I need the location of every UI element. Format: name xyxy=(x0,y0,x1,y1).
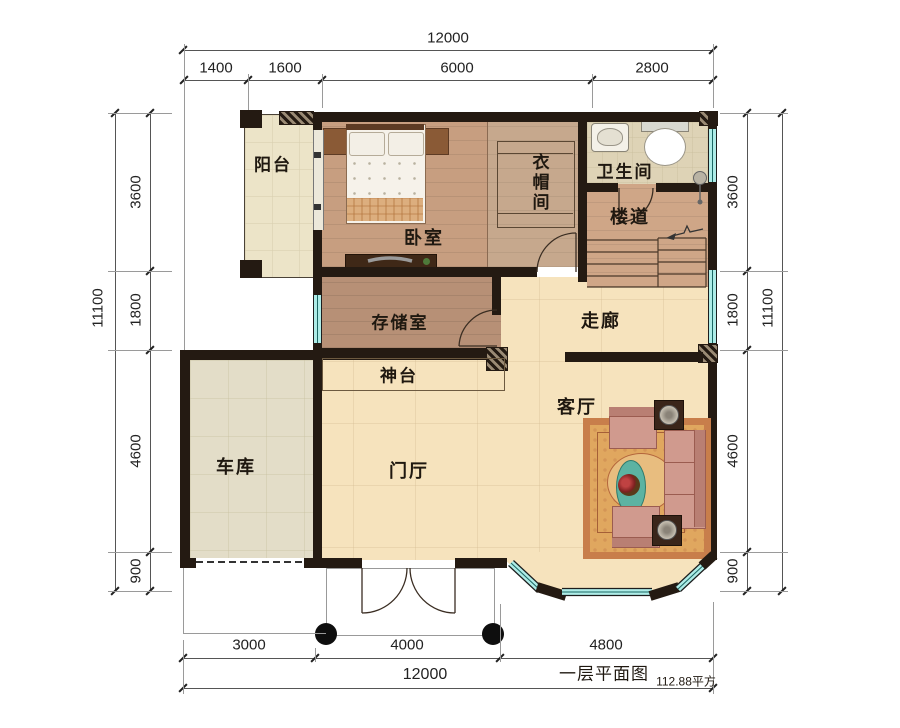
dim-top-seg-3: 2800 xyxy=(635,60,668,77)
dim-left-overall: 11100 xyxy=(90,288,107,328)
dim-right-seg-0: 3600 xyxy=(725,175,742,208)
dim-top-seg-0: 1400 xyxy=(199,60,232,77)
room-label-hallway: 走廊 xyxy=(581,307,621,333)
bay-window xyxy=(509,555,715,596)
plan-area: 112.88平方 xyxy=(656,673,716,690)
room-label-foyer: 门厅 xyxy=(389,457,429,483)
room-label-bedroom: 卧室 xyxy=(404,224,444,250)
storage-door-icon xyxy=(459,310,497,346)
shower-icon xyxy=(694,172,707,205)
dim-bottom-seg-2: 4800 xyxy=(589,637,622,654)
room-label-garage: 车库 xyxy=(216,453,256,479)
dim-bottom-seg-0: 3000 xyxy=(232,637,265,654)
dim-right-segment-line xyxy=(747,113,748,591)
room-label-bathroom: 卫生间 xyxy=(597,158,654,183)
dim-left-overall-line xyxy=(115,113,116,591)
room-label-storage: 存储室 xyxy=(372,309,429,334)
floor-plan: 阳台 卧室 衣帽间 卫生间 楼道 存储室 走廊 神台 车库 门厅 客厅 1200… xyxy=(0,0,900,728)
dim-left-seg-3: 900 xyxy=(128,558,145,583)
dim-right-overall: 11100 xyxy=(760,288,777,328)
room-label-stairwell: 楼道 xyxy=(610,203,650,229)
room-label-altar: 神台 xyxy=(380,362,418,387)
plan-linework xyxy=(0,0,900,728)
dim-right-overall-line xyxy=(782,113,783,591)
dim-top-segment-line xyxy=(183,80,713,81)
dim-left-seg-2: 4600 xyxy=(128,434,145,467)
dim-top-overall-line xyxy=(183,50,713,51)
bedroom-door-icon xyxy=(537,233,576,272)
dim-bottom-seg-1: 4000 xyxy=(390,637,423,654)
dim-right-seg-2: 4600 xyxy=(725,434,742,467)
dim-left-seg-0: 3600 xyxy=(128,175,145,208)
dim-top-seg-1: 1600 xyxy=(268,60,301,77)
dim-left-seg-1: 1800 xyxy=(128,293,145,326)
room-label-living: 客厅 xyxy=(557,393,597,419)
dim-right-seg-1: 1800 xyxy=(725,293,742,326)
dim-bottom-overall-line xyxy=(183,688,713,689)
dim-top-seg-2: 6000 xyxy=(440,60,473,77)
plan-title: 一层平面图 xyxy=(559,660,649,685)
entrance-door-icon xyxy=(362,568,455,613)
room-label-balcony: 阳台 xyxy=(254,151,292,176)
room-label-cloakroom: 衣帽间 xyxy=(527,153,552,213)
dim-left-segment-line xyxy=(150,113,151,591)
stairs-icon xyxy=(587,238,706,287)
dim-bottom-overall: 12000 xyxy=(403,666,448,684)
dim-right-seg-3: 900 xyxy=(725,558,742,583)
dim-top-overall: 12000 xyxy=(427,30,469,47)
tv-icon xyxy=(368,258,412,261)
